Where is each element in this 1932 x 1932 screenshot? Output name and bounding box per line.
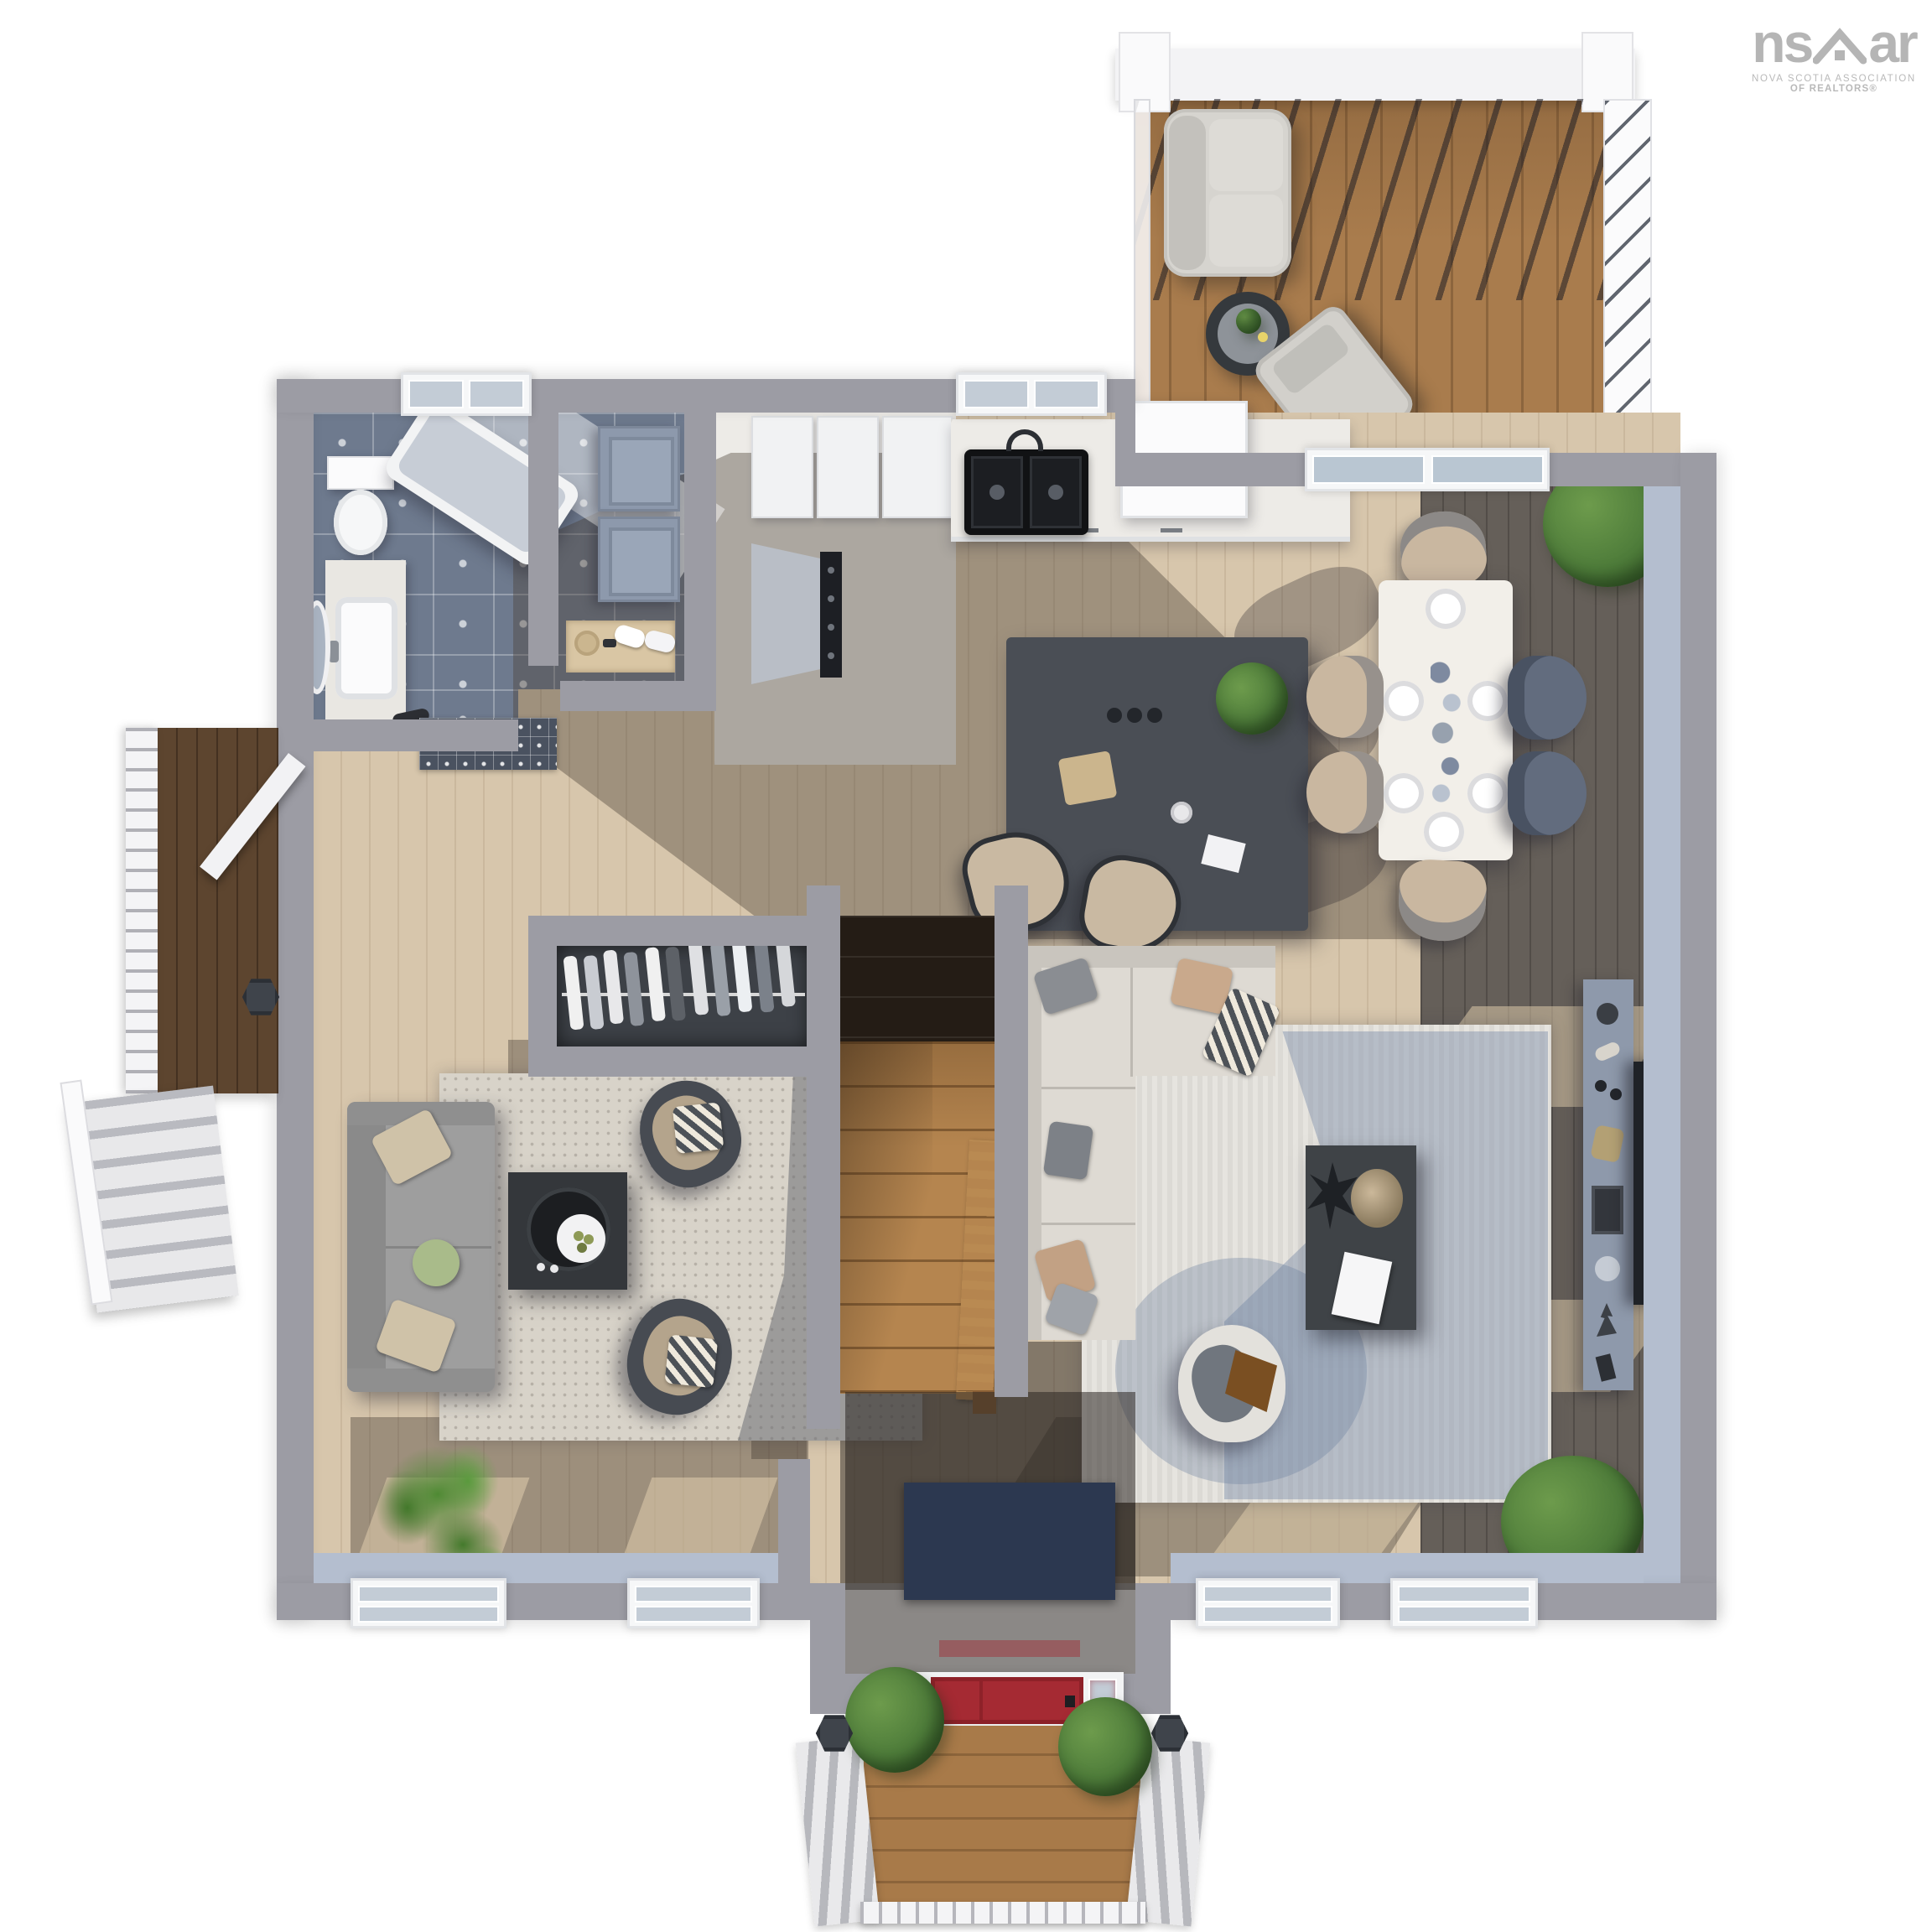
range-cooktop [820, 552, 842, 678]
rear-sliding-glass-door [1305, 448, 1550, 491]
range-hood [751, 543, 828, 684]
door-light-reflection [939, 1640, 1080, 1657]
dining-chair-head [1398, 509, 1488, 590]
olives [574, 1231, 584, 1241]
sink-drain [1048, 485, 1063, 500]
cutting-board [1058, 750, 1118, 806]
dining-area [1291, 453, 1685, 973]
logo-subtext-line2: OF REALTORS® [1742, 84, 1925, 94]
logo-subtext-line2-bold: OF REALTORS® [1790, 84, 1877, 94]
wall-bath-laundry-divider [528, 413, 558, 666]
media-console [1583, 979, 1633, 1390]
stair-shadow [840, 1041, 932, 1394]
living-window [627, 1578, 760, 1628]
place-setting-plate [1424, 812, 1464, 852]
dryer [598, 517, 680, 602]
window-sash [1203, 1606, 1332, 1623]
wall-closet-left [528, 916, 557, 1077]
outdoor-loveseat [1164, 109, 1291, 277]
pantry-cabinet [882, 416, 953, 518]
place-setting-plate [1467, 773, 1508, 813]
round-tray [574, 631, 600, 656]
wall-closet-bottom [528, 1046, 813, 1077]
window-sash [1398, 1586, 1530, 1602]
front-porch [780, 1714, 1233, 1932]
toilet-bowl [334, 490, 387, 555]
chevron-pillow [664, 1334, 718, 1388]
washer-door [609, 437, 674, 506]
kitchen-window [956, 372, 1107, 416]
wall-right [1680, 453, 1716, 1620]
cushion-seam [1041, 1087, 1135, 1089]
closet-rod [562, 993, 805, 996]
dryer-door [609, 527, 674, 596]
throw-pillow [1043, 1121, 1093, 1181]
living-window [351, 1578, 506, 1628]
book [1332, 1252, 1393, 1324]
soap-bottle [603, 639, 616, 647]
family-window [1390, 1578, 1538, 1628]
dining-chair-left [1306, 751, 1384, 834]
decor-vase [1597, 1003, 1618, 1025]
pantry-corridor [714, 413, 956, 765]
window-pane [963, 380, 1029, 408]
fern-shadow [1307, 1162, 1358, 1229]
swivel-armchair [1178, 1325, 1285, 1442]
linen-niche [566, 621, 675, 673]
sink-drain [989, 485, 1005, 500]
porch-shrub [845, 1667, 944, 1773]
kitchen-sink [964, 449, 1088, 535]
napkin [1201, 834, 1245, 873]
dining-chair-right [1508, 656, 1587, 740]
round-pillow [413, 1239, 460, 1286]
decor-tray [1593, 1041, 1622, 1063]
window-pane [469, 380, 524, 408]
entry-vestibule [845, 1392, 1135, 1690]
place-setting-plate [1384, 773, 1424, 813]
dining-chair-left [1306, 656, 1384, 738]
decor-plant-sprig [1597, 1303, 1617, 1337]
lemon [1258, 332, 1268, 342]
door-handle [1065, 1696, 1075, 1707]
floor-plan-screenshot: { "watermark": { "brand_left": "ns", "br… [0, 0, 1932, 1932]
wall-top-jog [1115, 379, 1135, 486]
washer [598, 426, 680, 512]
rear-deck [1115, 25, 1669, 461]
pantry-cabinet [817, 416, 879, 518]
island-plant [1216, 662, 1288, 735]
canister [1107, 708, 1122, 723]
place-setting-plate [1467, 681, 1508, 721]
wall-right-inner-face [1644, 486, 1680, 1583]
range-knob [828, 652, 834, 659]
logo-text-ar: ar [1868, 15, 1915, 70]
house-roof-icon [1813, 22, 1867, 70]
cushion-seam [1130, 968, 1133, 1077]
decor-candles [1595, 1080, 1607, 1092]
entry-door-mat [904, 1483, 1115, 1600]
towel-roll [643, 629, 677, 654]
family-coffee-table [1306, 1145, 1416, 1330]
small-cups [537, 1263, 545, 1271]
stair-lower-flight-dark [840, 916, 995, 1041]
toilet [327, 456, 394, 490]
wall-closet-top [528, 916, 813, 946]
vanity-sink [335, 597, 397, 699]
place-setting-plate [1384, 681, 1424, 721]
window-sash [358, 1586, 499, 1602]
wall-stair-left [807, 885, 840, 1429]
centerpiece-garland [1431, 657, 1461, 808]
bathroom-window [401, 372, 532, 416]
door-glass-pane [1312, 455, 1425, 484]
cable-railing [1603, 99, 1652, 453]
wall-laundry-pantry [684, 413, 716, 711]
sofa-armrest [347, 1368, 495, 1392]
door-glass-pane [1431, 455, 1544, 484]
range-knob [828, 624, 834, 631]
wall-bath-south [312, 719, 518, 751]
wall-stair-right [995, 885, 1028, 1397]
loveseat-seat-cushion [1209, 119, 1283, 191]
porch-railing-bottom [860, 1902, 1145, 1924]
towel-roll [612, 623, 647, 650]
dining-chair-right [1508, 751, 1587, 835]
window-pane [408, 380, 464, 408]
window-sash [635, 1606, 752, 1623]
bowl [1171, 802, 1192, 823]
table-plant [1236, 309, 1261, 334]
window-sash [1398, 1606, 1530, 1623]
porch-shrub [1058, 1697, 1152, 1796]
window-sash [1203, 1586, 1332, 1602]
logo-subtext-line1: NOVA SCOTIA ASSOCIATION [1742, 74, 1925, 84]
place-setting-plate [1426, 589, 1466, 629]
wall-living-entry-stub [778, 1459, 810, 1583]
dried-plant [1351, 1169, 1403, 1228]
dining-table [1379, 580, 1513, 860]
decor-speaker [1592, 1186, 1623, 1234]
range-knob [828, 595, 834, 602]
window-sash [358, 1606, 499, 1623]
chevron-pillow [673, 1102, 724, 1154]
pergola-beam [1115, 49, 1635, 101]
window-pane [1034, 380, 1099, 408]
staircase [840, 916, 995, 1394]
side-deck-railing [126, 728, 158, 1093]
rear-deck-left-rail [1134, 99, 1150, 453]
range-knob [828, 567, 834, 574]
decor-bowl [1595, 1256, 1620, 1281]
cushion-seam [1041, 1223, 1135, 1225]
side-deck-floor [156, 728, 278, 1093]
cabinet-handle [1161, 528, 1182, 532]
logo-text-ns: ns [1752, 15, 1811, 70]
window-sash [635, 1586, 752, 1602]
decor-basket [1590, 1124, 1625, 1163]
loveseat-back-cushion [1169, 116, 1206, 270]
decor-figurine [1596, 1353, 1617, 1381]
pantry-cabinet [751, 416, 813, 518]
loveseat-seat-cushion [1209, 195, 1283, 267]
coat-closet [557, 946, 810, 1046]
living-coffee-table [508, 1172, 627, 1290]
family-window [1196, 1578, 1340, 1628]
nsar-watermark: ns ar NOVA SCOTIA ASSOCIATION OF REALTOR… [1742, 15, 1925, 107]
